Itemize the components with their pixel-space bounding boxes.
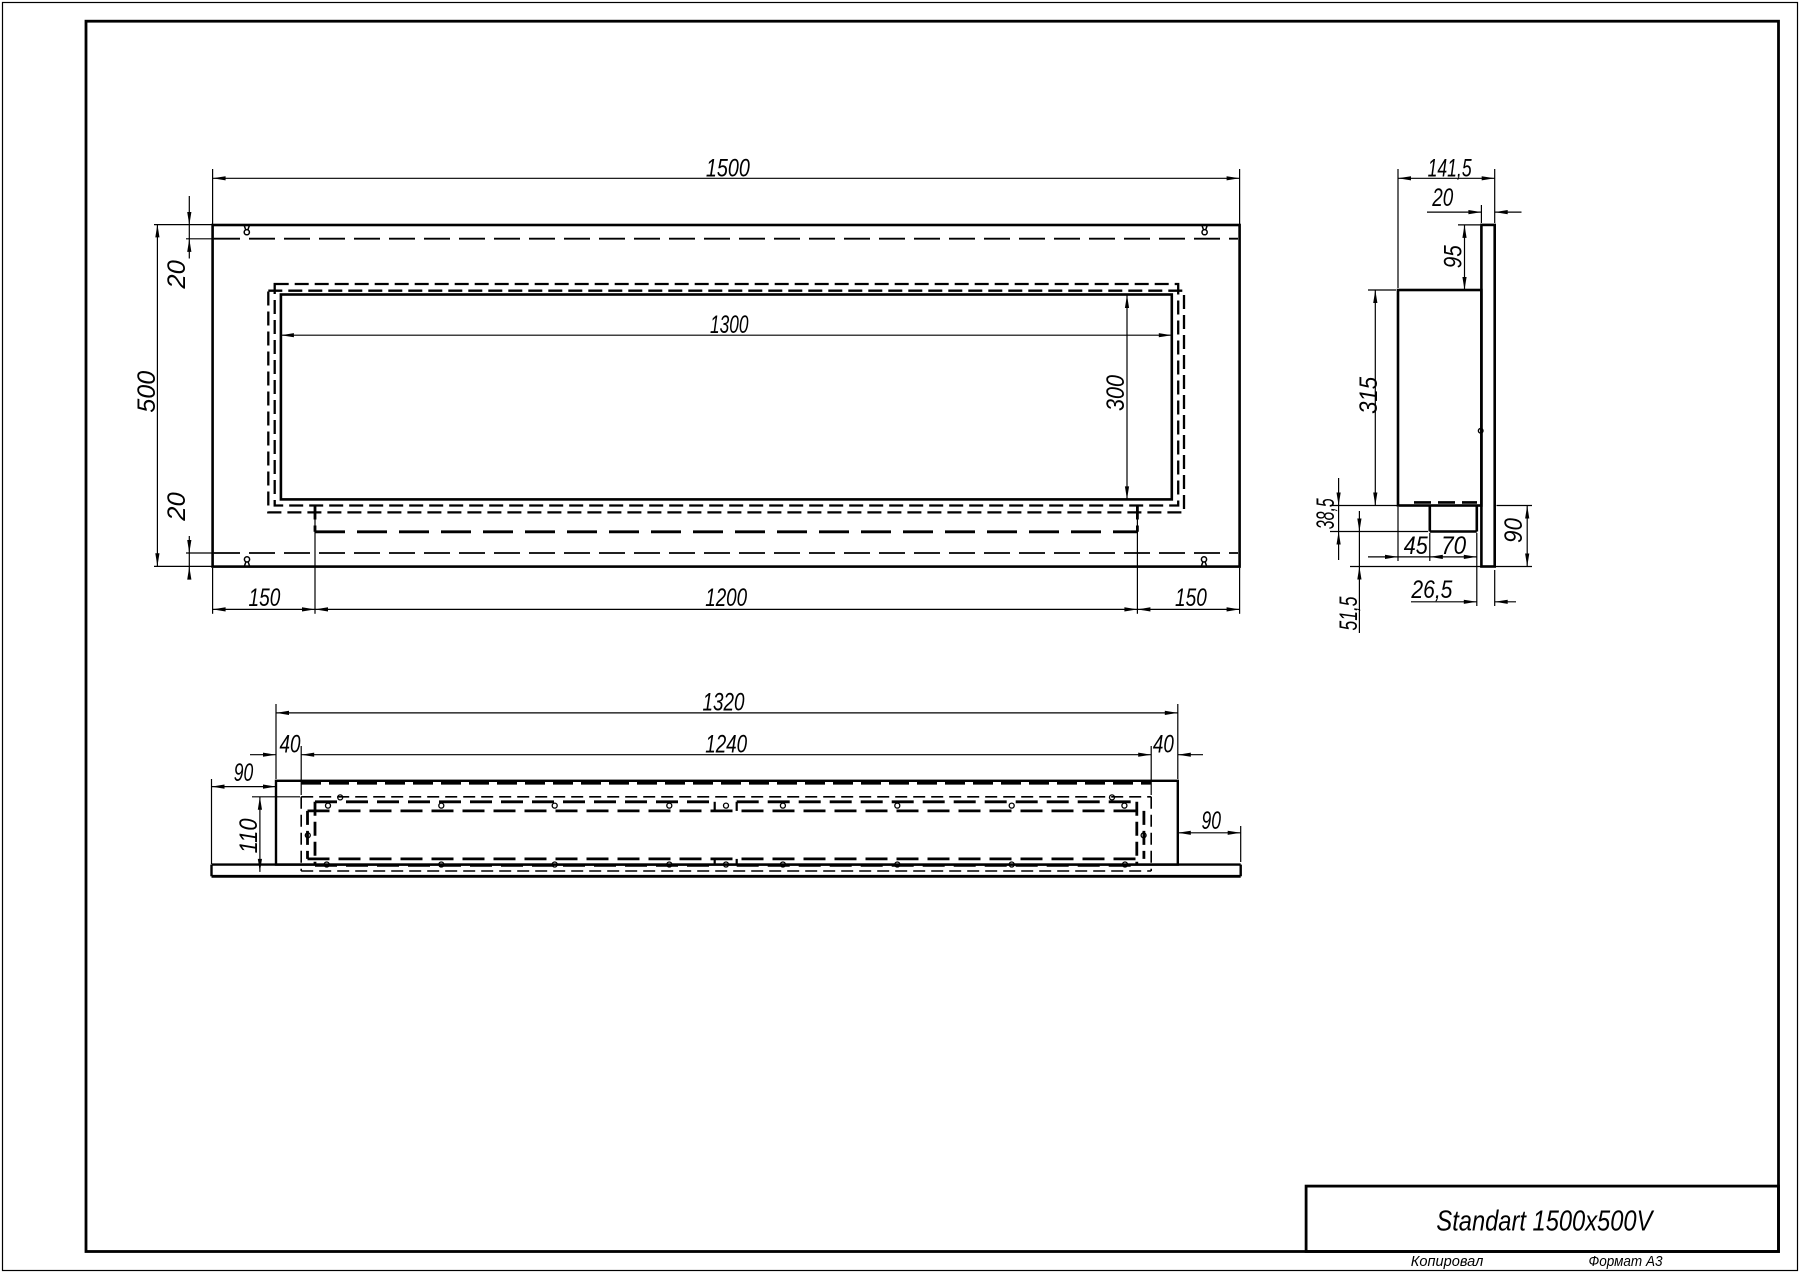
- svg-text:1500: 1500: [706, 154, 750, 182]
- svg-text:90: 90: [234, 759, 254, 787]
- svg-text:20: 20: [163, 492, 191, 522]
- svg-text:Копировал: Копировал: [1411, 1253, 1484, 1270]
- svg-text:38,5: 38,5: [1312, 498, 1340, 529]
- svg-text:141,5: 141,5: [1428, 154, 1472, 182]
- svg-text:1320: 1320: [703, 689, 745, 717]
- svg-text:45: 45: [1404, 532, 1428, 560]
- svg-text:90: 90: [1202, 807, 1222, 835]
- svg-text:51,5: 51,5: [1335, 596, 1363, 630]
- svg-text:20: 20: [163, 260, 191, 290]
- svg-text:1300: 1300: [710, 311, 749, 339]
- svg-text:20: 20: [1431, 184, 1453, 212]
- svg-text:95: 95: [1440, 245, 1468, 268]
- svg-text:70: 70: [1441, 532, 1466, 560]
- svg-text:500: 500: [133, 371, 161, 413]
- svg-text:1200: 1200: [705, 584, 747, 612]
- svg-text:90: 90: [1500, 518, 1528, 543]
- svg-text:Формат А3: Формат А3: [1589, 1253, 1664, 1270]
- svg-text:40: 40: [1153, 730, 1174, 758]
- svg-text:Standart 1500x500V: Standart 1500x500V: [1436, 1206, 1654, 1238]
- svg-text:300: 300: [1102, 375, 1130, 411]
- svg-text:150: 150: [249, 584, 281, 612]
- svg-text:315: 315: [1355, 377, 1383, 414]
- svg-text:150: 150: [1175, 584, 1207, 612]
- svg-text:40: 40: [280, 730, 301, 758]
- svg-text:110: 110: [235, 818, 263, 853]
- svg-text:1240: 1240: [705, 730, 747, 758]
- svg-text:26,5: 26,5: [1411, 576, 1453, 604]
